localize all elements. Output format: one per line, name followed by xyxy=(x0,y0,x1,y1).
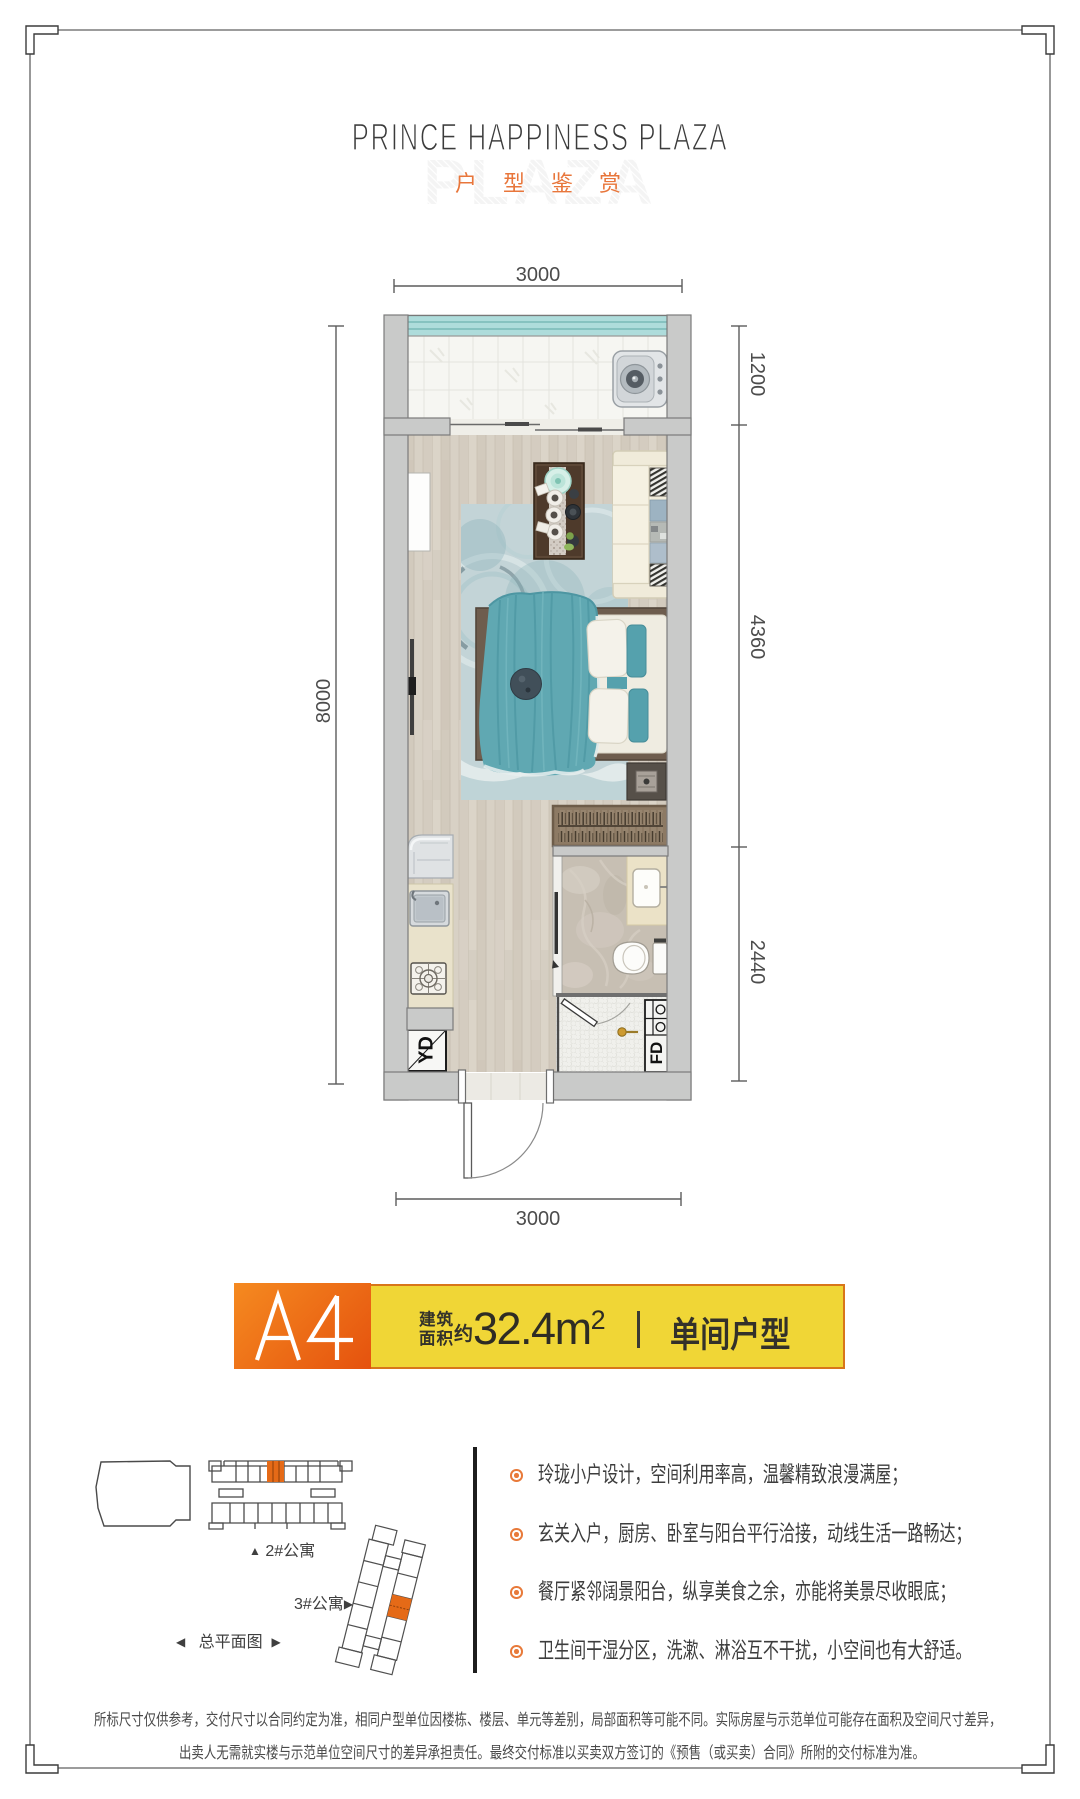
svg-text:FD: FD xyxy=(647,1042,666,1065)
svg-text:8000: 8000 xyxy=(313,679,335,724)
svg-text:1200: 1200 xyxy=(746,352,768,397)
svg-text:3000: 3000 xyxy=(516,264,561,286)
svg-text:YD: YD xyxy=(416,1036,438,1064)
svg-text:4360: 4360 xyxy=(746,615,768,660)
svg-text:3000: 3000 xyxy=(516,1208,561,1230)
svg-text:2440: 2440 xyxy=(746,940,768,985)
